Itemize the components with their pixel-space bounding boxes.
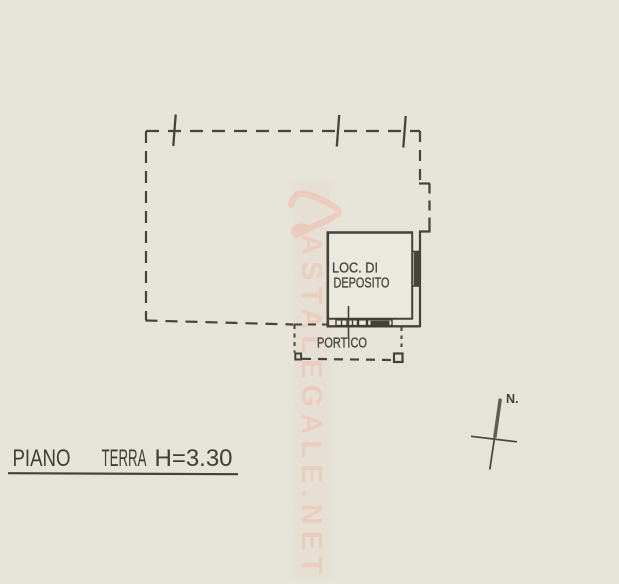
svg-text:PIANO: PIANO — [13, 445, 71, 472]
svg-text:TERRA: TERRA — [102, 445, 147, 472]
svg-text:H=3.30: H=3.30 — [155, 445, 233, 472]
svg-text:DEPOSITO: DEPOSITO — [334, 275, 390, 292]
svg-text:PORTICO: PORTICO — [317, 336, 367, 352]
svg-text:N.: N. — [506, 392, 519, 406]
